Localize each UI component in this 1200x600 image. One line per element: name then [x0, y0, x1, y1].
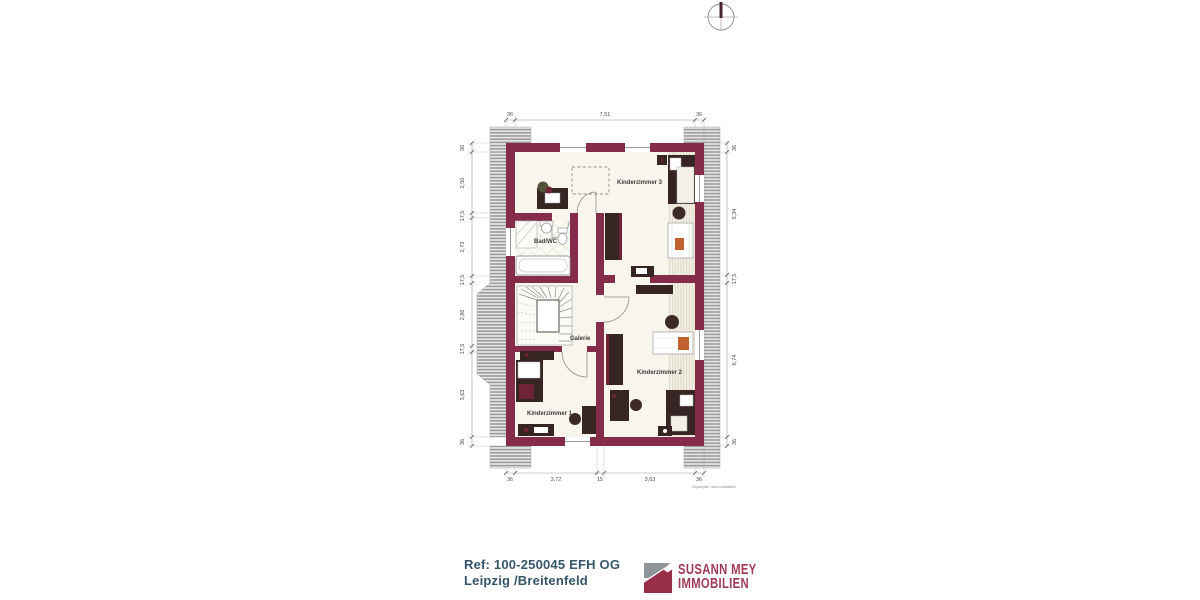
dim-left-7: 3,63 — [460, 390, 466, 401]
scale-note: Exposéplan, nicht maßstäblich — [692, 485, 735, 489]
dim-right-4: 36 — [732, 439, 738, 445]
room-label-kinderzimmer3: Kinderzimmer 3 — [617, 180, 663, 186]
dim-right-2: 17,5 — [732, 274, 738, 285]
compass-north-icon — [704, 2, 738, 31]
dim-left-0: 36 — [460, 145, 466, 151]
reference-id: Ref: 100-250045 EFH OG — [464, 557, 620, 573]
room-label-kinderzimmer2: Kinderzimmer 2 — [637, 370, 683, 376]
dim-right-1: 5,34 — [732, 209, 738, 220]
logo-house-icon — [643, 562, 673, 594]
dim-left-6: 17,5 — [460, 344, 466, 355]
dim-right-3: 6,74 — [732, 355, 738, 366]
dim-left-3: 2,73 — [460, 242, 466, 253]
floorplan: Kinderzimmer 3 Bad/WC Galerie Kinderzimm… — [440, 0, 760, 500]
reference-block: Ref: 100-250045 EFH OG Leipzig /Breitenf… — [464, 557, 620, 588]
dim-bottom-0: 36 — [507, 477, 513, 483]
brand-subtitle: IMMOBILIEN — [678, 578, 757, 592]
dim-top-2: 36 — [696, 112, 702, 118]
dim-bottom-1: 3,72 — [551, 477, 562, 483]
dim-left-2: 17,5 — [460, 211, 466, 222]
reference-location: Leipzig /Breitenfeld — [464, 573, 620, 589]
dim-left-5: 2,86 — [460, 310, 466, 321]
dim-bottom-3: 3,63 — [645, 477, 656, 483]
dim-left-1: 2,50 — [460, 178, 466, 189]
dim-top-1: 7,51 — [600, 112, 611, 118]
room-label-kinderzimmer1: Kinderzimmer 1 — [527, 411, 573, 417]
brand-logo: SUSANN MEY IMMOBILIEN — [643, 561, 779, 595]
room-label-galerie: Galerie — [570, 336, 591, 342]
room-label-bad-wc: Bad/WC — [534, 239, 558, 245]
brand-wordmark: SUSANN MEY IMMOBILIEN — [678, 564, 757, 592]
staircase — [517, 286, 572, 345]
dim-bottom-4: 36 — [696, 477, 702, 483]
dim-right-0: 36 — [732, 145, 738, 151]
dim-left-4: 17,5 — [460, 275, 466, 286]
dim-bottom-2: 15 — [597, 477, 603, 483]
dim-top-0: 36 — [507, 112, 513, 118]
dim-left-8: 36 — [460, 439, 466, 445]
